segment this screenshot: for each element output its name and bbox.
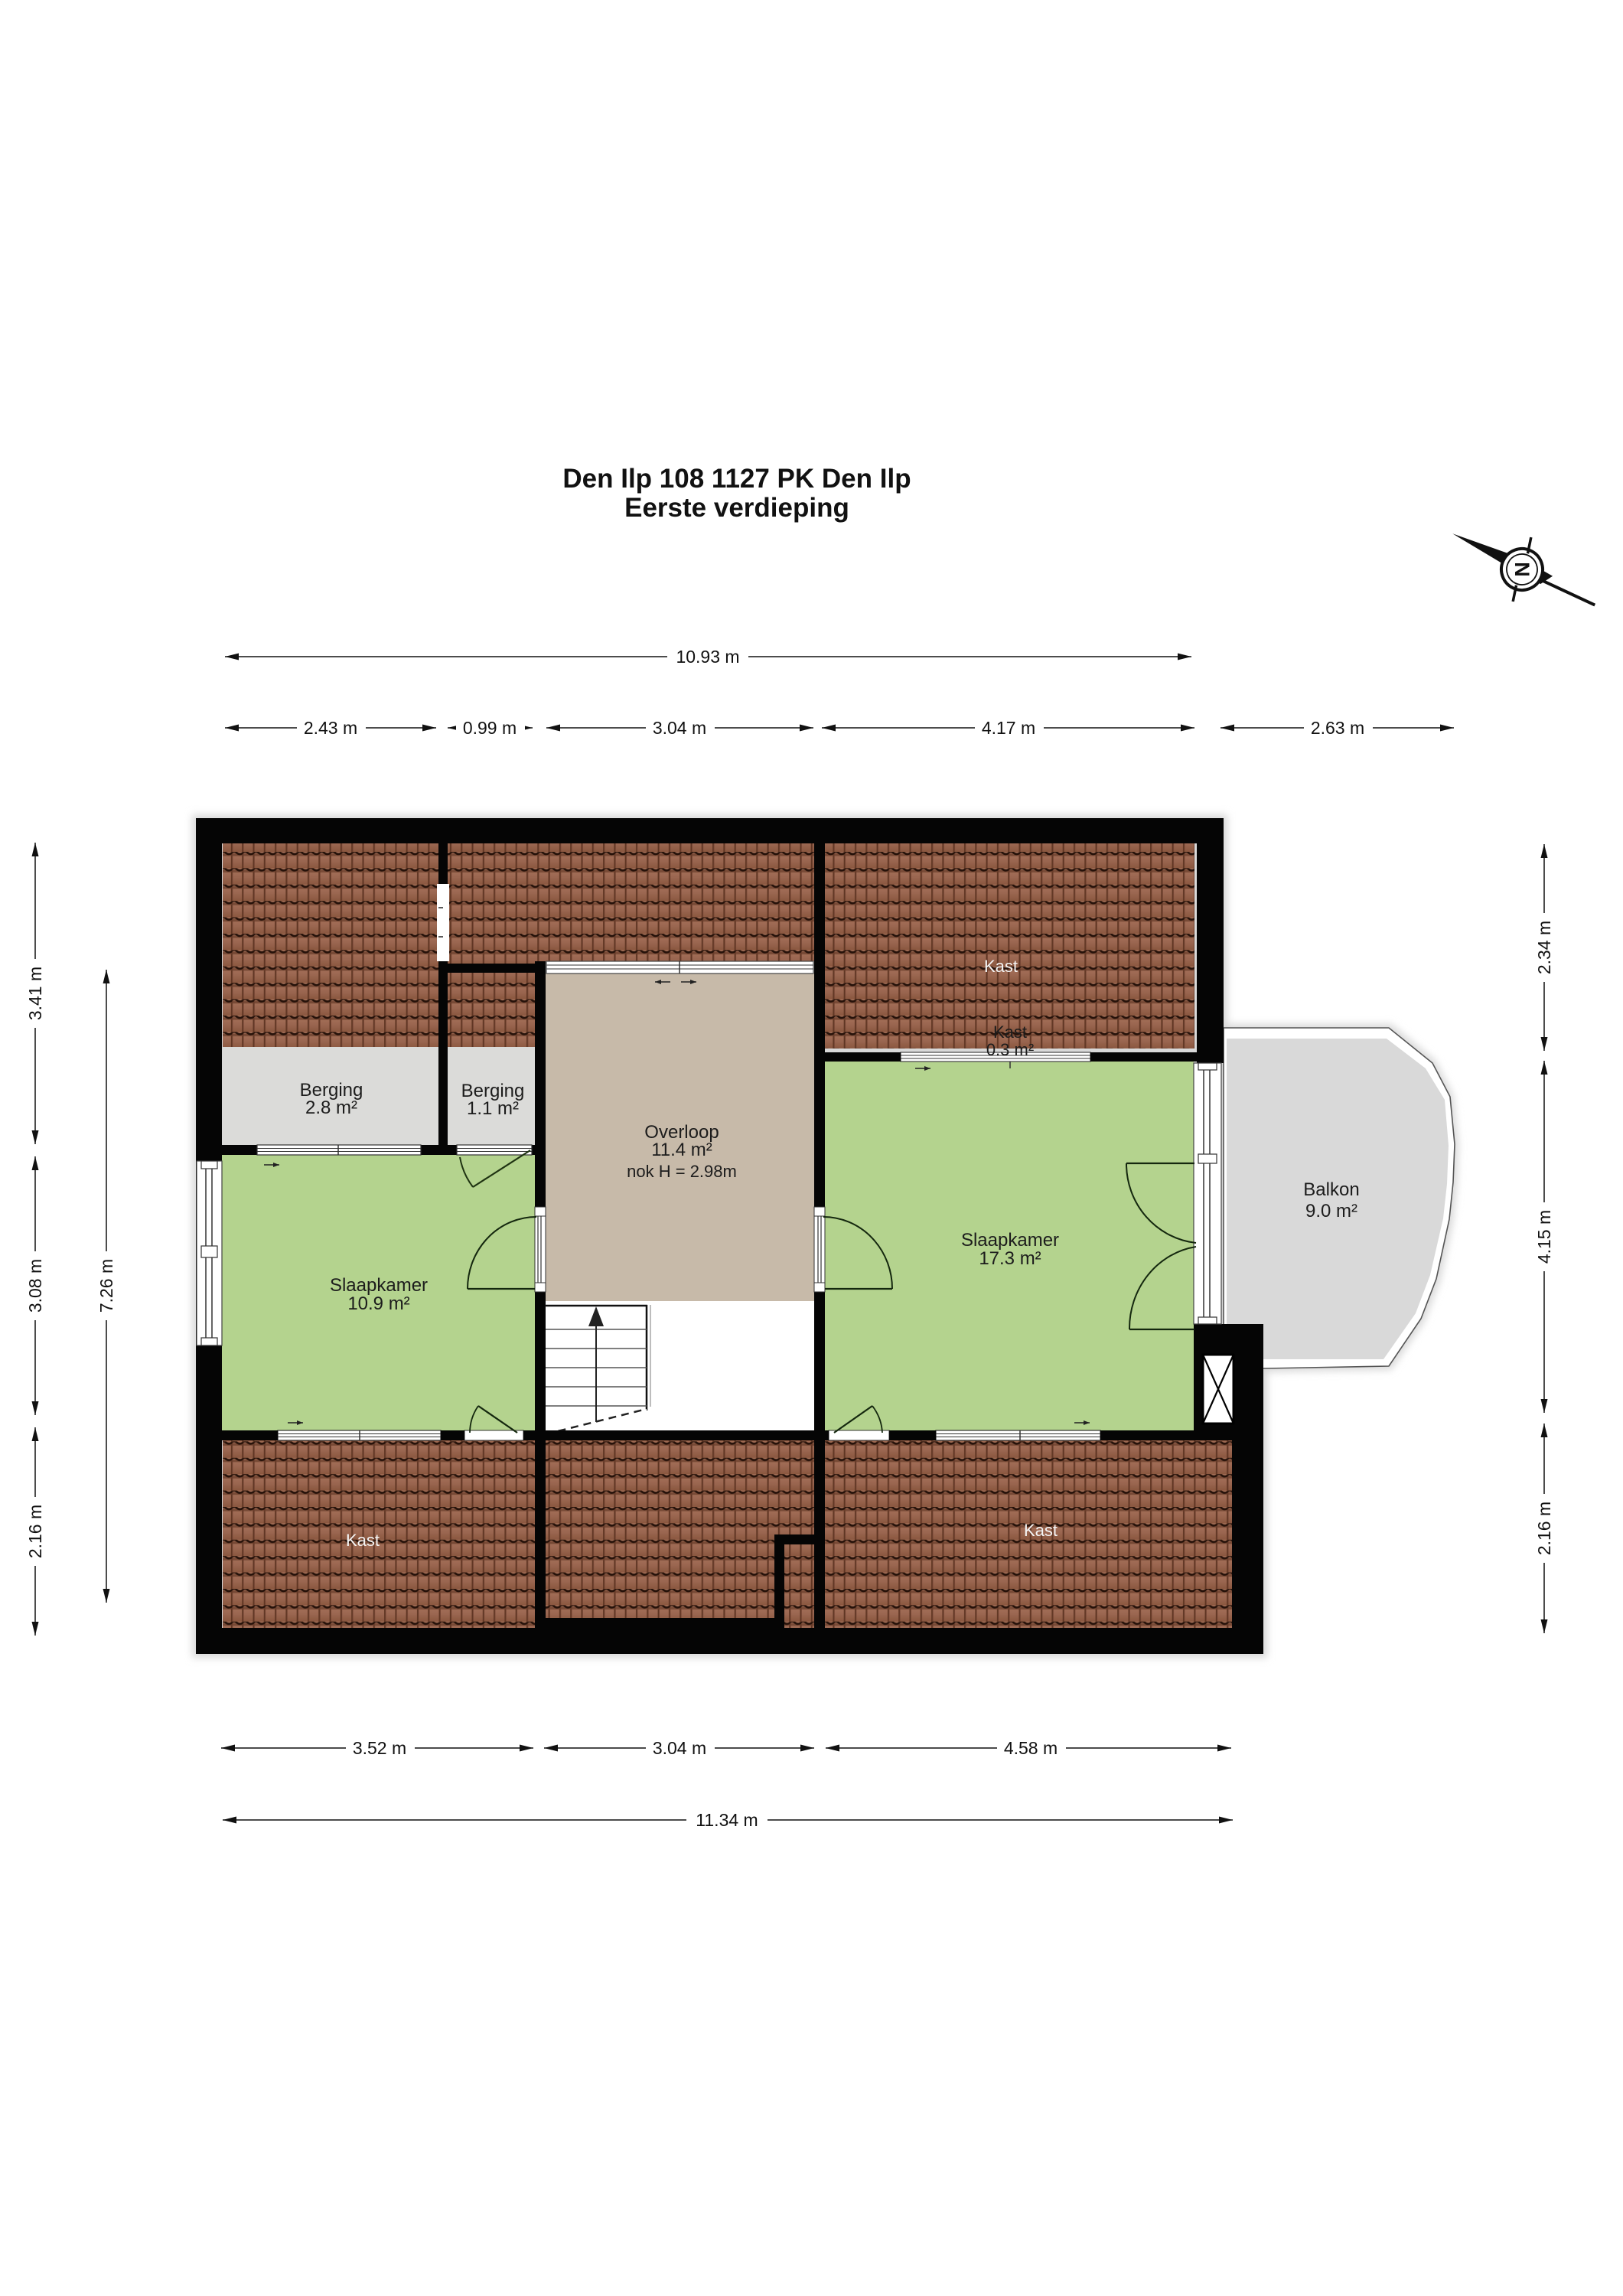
svg-text:Kast: Kast — [993, 1022, 1027, 1042]
svg-text:3.08 m: 3.08 m — [25, 1259, 45, 1313]
svg-text:3.04 m: 3.04 m — [653, 1738, 706, 1758]
svg-text:3.41 m: 3.41 m — [25, 967, 45, 1020]
svg-text:N: N — [1511, 562, 1533, 577]
svg-text:Kast: Kast — [346, 1531, 380, 1550]
svg-text:4.17 m: 4.17 m — [982, 718, 1035, 738]
svg-text:3.52 m: 3.52 m — [353, 1738, 406, 1758]
svg-text:2.43 m: 2.43 m — [304, 718, 357, 738]
svg-text:1.1 m²: 1.1 m² — [467, 1098, 519, 1119]
svg-text:2.8 m²: 2.8 m² — [305, 1097, 357, 1118]
svg-text:2.34 m: 2.34 m — [1534, 921, 1554, 974]
svg-text:2.16 m: 2.16 m — [25, 1505, 45, 1558]
svg-text:Eerste verdieping: Eerste verdieping — [624, 493, 849, 523]
svg-text:nok H = 2.98m: nok H = 2.98m — [627, 1162, 737, 1181]
svg-text:11.34 m: 11.34 m — [696, 1810, 758, 1830]
svg-text:2.16 m: 2.16 m — [1534, 1502, 1554, 1555]
svg-text:11.4 m²: 11.4 m² — [651, 1140, 712, 1160]
svg-text:4.58 m: 4.58 m — [1004, 1738, 1058, 1758]
svg-text:Slaapkamer: Slaapkamer — [330, 1275, 428, 1296]
svg-text:10.9 m²: 10.9 m² — [347, 1293, 409, 1314]
svg-text:Slaapkamer: Slaapkamer — [961, 1230, 1059, 1251]
svg-text:4.15 m: 4.15 m — [1534, 1210, 1554, 1264]
svg-text:7.26 m: 7.26 m — [96, 1259, 116, 1313]
svg-text:9.0 m²: 9.0 m² — [1305, 1201, 1357, 1221]
svg-text:0.3 m²: 0.3 m² — [986, 1040, 1034, 1059]
svg-text:Kast: Kast — [984, 957, 1018, 976]
svg-text:10.93 m: 10.93 m — [676, 647, 739, 667]
svg-text:2.63 m: 2.63 m — [1311, 718, 1364, 738]
svg-text:3.04 m: 3.04 m — [653, 718, 706, 738]
svg-text:Kast: Kast — [1024, 1521, 1058, 1540]
svg-text:0.99 m: 0.99 m — [463, 718, 517, 738]
svg-text:17.3 m²: 17.3 m² — [979, 1248, 1041, 1269]
svg-text:Balkon: Balkon — [1303, 1179, 1359, 1200]
svg-text:Den Ilp 108 1127 PK Den Ilp: Den Ilp 108 1127 PK Den Ilp — [562, 464, 911, 494]
